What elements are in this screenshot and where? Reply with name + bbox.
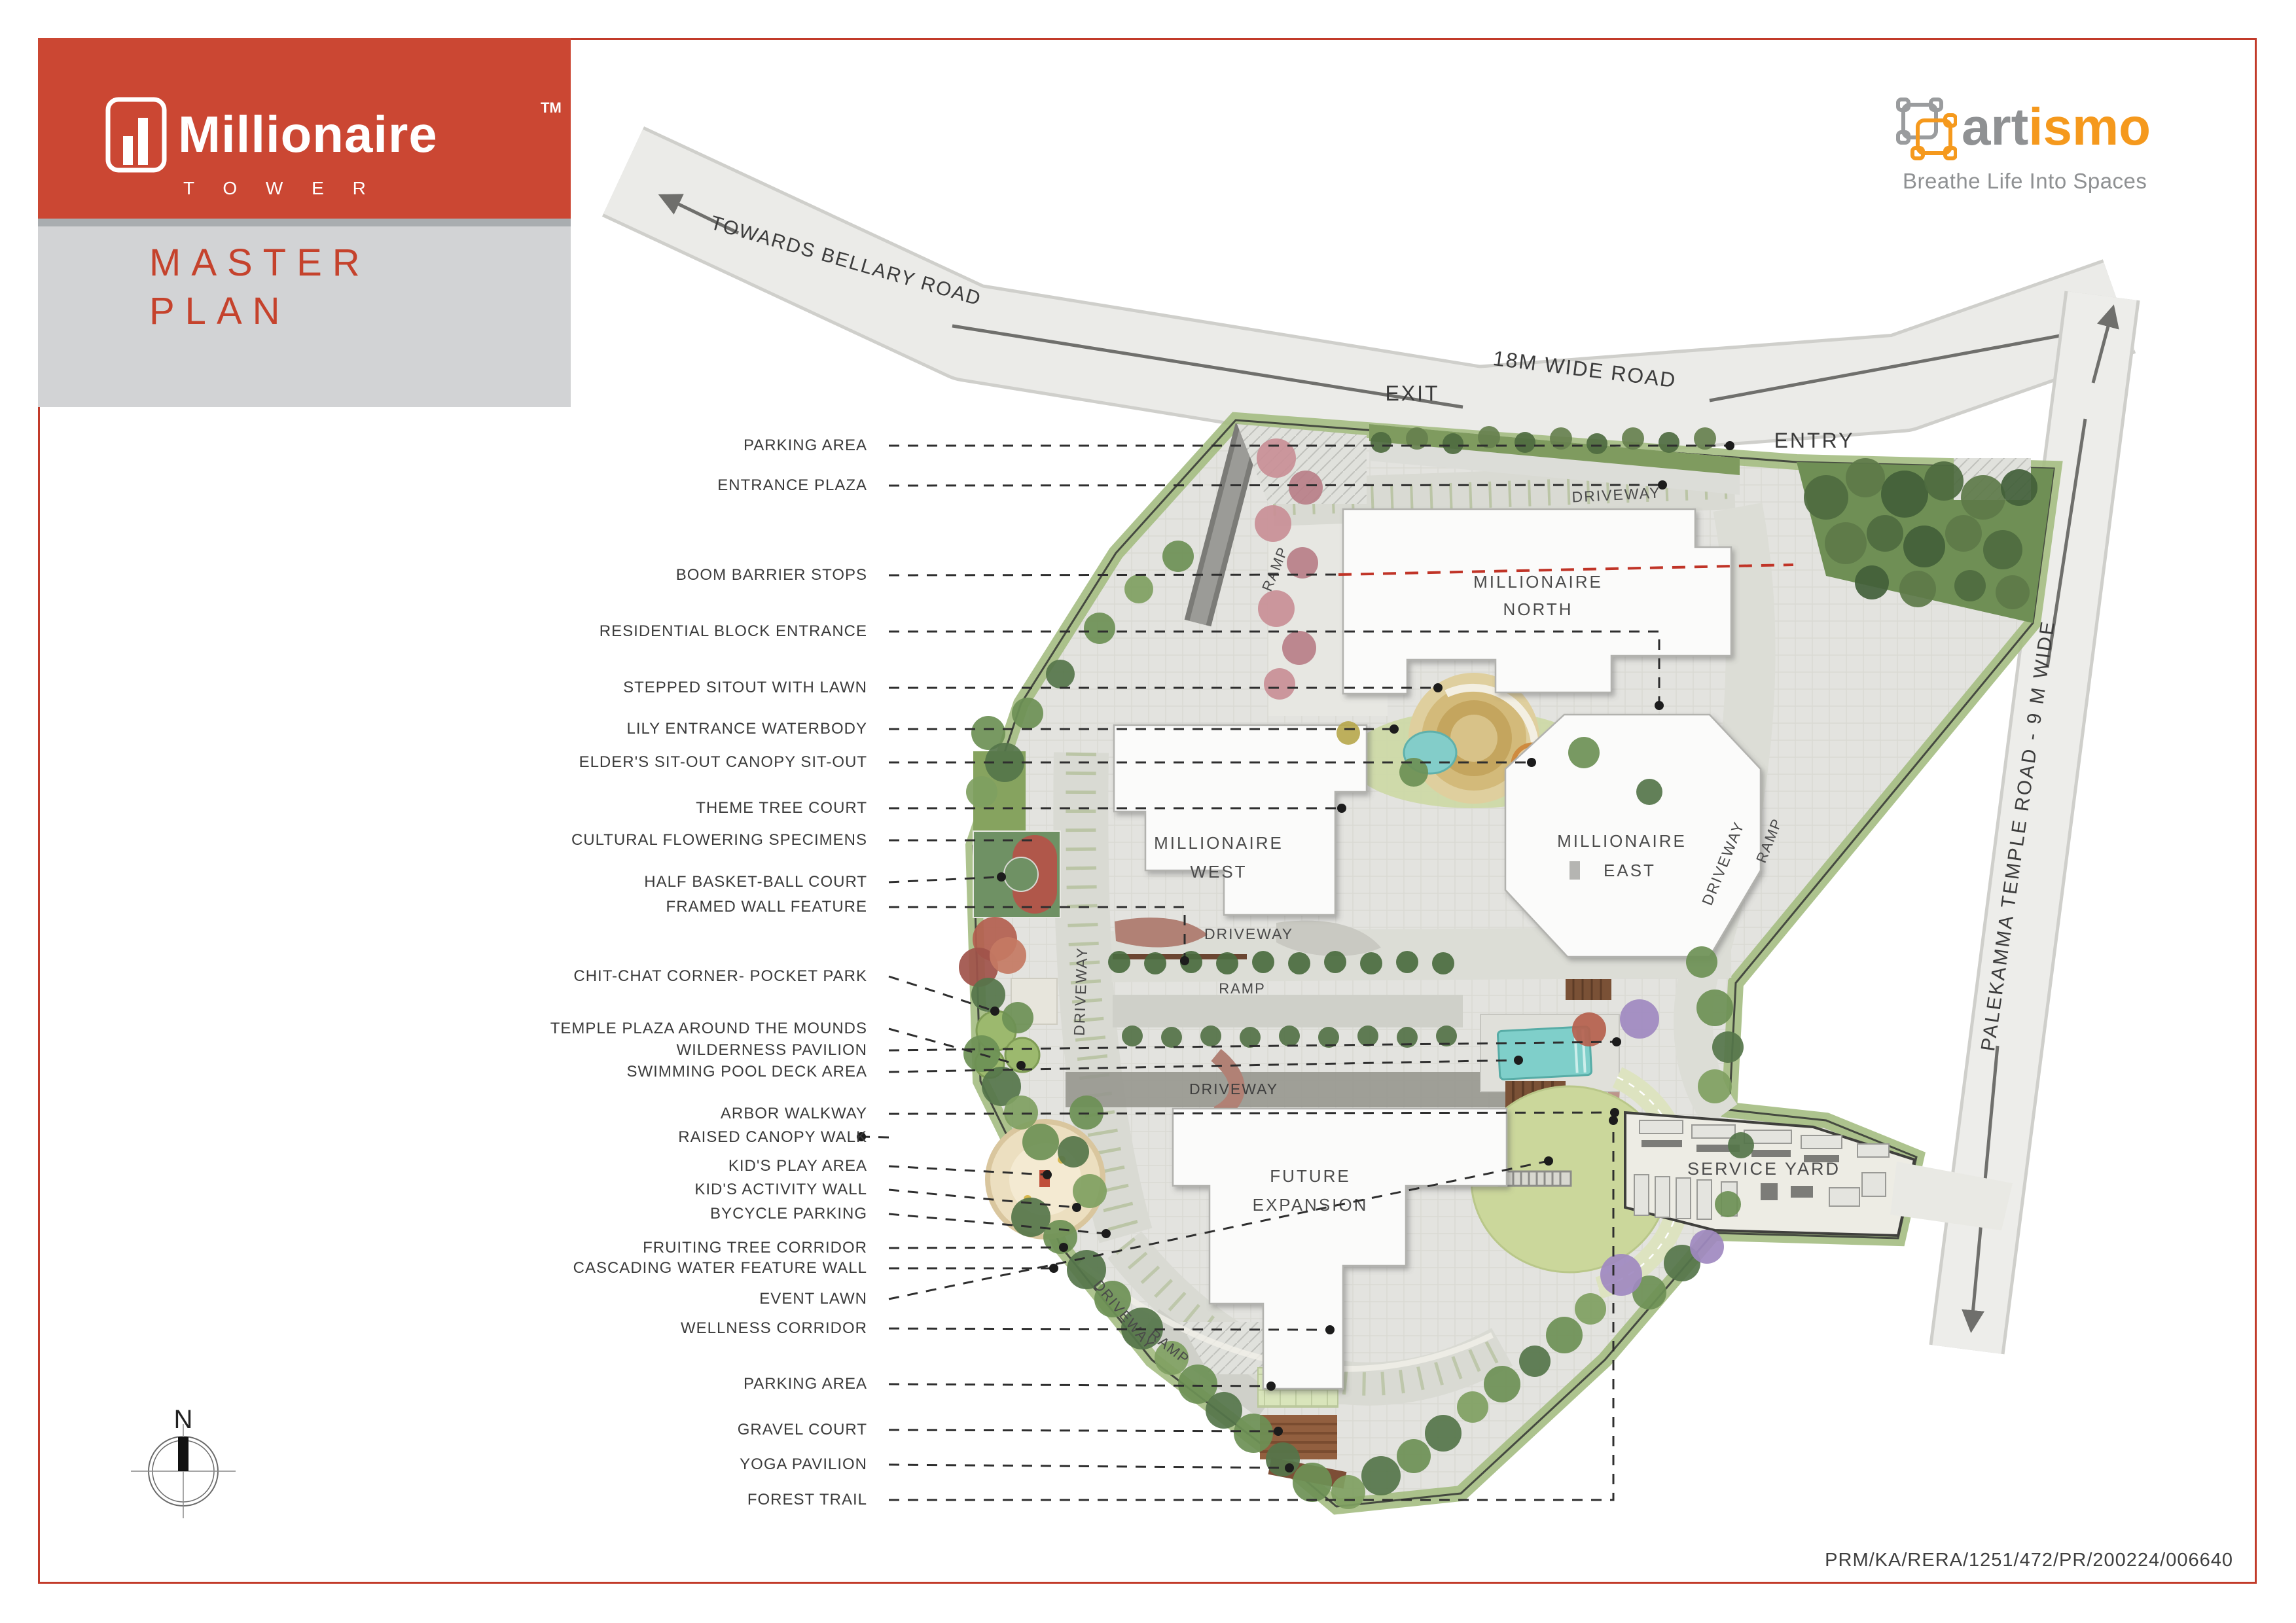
artismo-logo-icon — [1892, 92, 1957, 164]
callout-label: RAISED CANOPY WALK — [0, 1128, 867, 1147]
callout-label: CHIT-CHAT CORNER- POCKET PARK — [0, 967, 867, 986]
callout-label: ELDER'S SIT-OUT CANOPY SIT-OUT — [0, 753, 867, 772]
tree — [1715, 1191, 1741, 1217]
leader-line — [889, 1465, 1289, 1468]
tree — [1289, 471, 1323, 505]
tree — [1867, 515, 1903, 552]
callout-label: FRAMED WALL FEATURE — [0, 897, 867, 917]
tree — [1515, 432, 1535, 453]
tree — [1636, 779, 1662, 805]
tree — [1058, 1136, 1089, 1168]
tree — [1012, 698, 1043, 729]
tree — [990, 937, 1026, 974]
leader-dot — [1527, 758, 1536, 767]
masterplan-poster: TOWARDS BELLARY ROAD18M WIDE ROADEXITENT… — [0, 0, 2296, 1623]
callout-label: FOREST TRAIL — [0, 1490, 867, 1510]
plan-text: RAMP — [1219, 980, 1266, 997]
tree — [1124, 575, 1153, 603]
plan-text: SERVICE YARD — [1687, 1159, 1840, 1179]
tree — [1336, 721, 1360, 745]
leader-dot — [1325, 1325, 1335, 1334]
tree — [1282, 631, 1316, 665]
tree — [1255, 505, 1291, 542]
leader-dot — [1337, 804, 1346, 813]
leader-dot — [1043, 1170, 1052, 1179]
tree — [1293, 1463, 1332, 1502]
brand-name: Millionaire — [178, 105, 438, 164]
tree — [1004, 1096, 1038, 1130]
tree — [1357, 1026, 1378, 1046]
tree — [1457, 1391, 1488, 1423]
tree — [1144, 952, 1166, 974]
tree — [1331, 1475, 1365, 1509]
leader-line — [889, 1430, 1278, 1431]
page-title-line1: MASTER — [149, 241, 370, 285]
tree — [1257, 438, 1296, 478]
leader-dot — [1612, 1037, 1621, 1046]
plan-text: DRIVEWAY — [1189, 1080, 1278, 1097]
tree — [1252, 951, 1274, 973]
tree — [1903, 526, 1945, 567]
callout-label: RESIDENTIAL BLOCK ENTRANCE — [0, 622, 867, 641]
tree — [1161, 1027, 1182, 1048]
callout-label: WILDERNESS PAVILION — [0, 1041, 867, 1060]
callout-label: CULTURAL FLOWERING SPECIMENS — [0, 830, 867, 850]
tree — [1266, 1442, 1300, 1476]
callout-label: HALF BASKET-BALL COURT — [0, 872, 867, 892]
tree — [1825, 522, 1867, 564]
leader-dot — [1390, 724, 1399, 734]
tree — [1899, 571, 1936, 607]
callout-label: THEME TREE COURT — [0, 798, 867, 818]
leader-dot — [1433, 683, 1443, 692]
page-title-line2: PLAN — [149, 289, 291, 333]
leader-dot — [1544, 1156, 1553, 1166]
basketball-court — [973, 831, 1060, 918]
tree — [1600, 1254, 1642, 1296]
tree — [1546, 1317, 1583, 1353]
callout-label: FRUITING TREE CORRIDOR — [0, 1238, 867, 1258]
leader-dot — [990, 1007, 999, 1016]
tree — [1432, 952, 1454, 974]
studio-name: artismo — [1962, 97, 2151, 157]
east-label-marker — [1570, 861, 1580, 880]
tree — [1587, 433, 1607, 454]
callout-label: PARKING AREA — [0, 436, 867, 455]
tree — [1200, 1026, 1221, 1046]
tree — [1279, 1026, 1300, 1046]
callout-label: ARBOR WALKWAY — [0, 1104, 867, 1124]
road-bellary — [623, 171, 2119, 415]
studio-tagline: Breathe Life Into Spaces — [1903, 169, 2147, 194]
tree — [1022, 1124, 1059, 1160]
tree — [1846, 458, 1885, 497]
tree — [1961, 475, 2005, 520]
tree — [2001, 469, 2037, 506]
tree — [1371, 432, 1391, 453]
leader-dot — [1102, 1229, 1111, 1238]
callout-label: YOGA PAVILION — [0, 1455, 867, 1474]
leader-dot — [1725, 441, 1734, 450]
leader-dot — [1180, 956, 1189, 965]
tree — [1360, 952, 1382, 974]
tree — [1881, 471, 1928, 518]
leader-dot — [1514, 1056, 1523, 1065]
leader-dot — [1610, 1108, 1619, 1117]
tree — [1519, 1346, 1551, 1377]
plan-text: EXIT — [1385, 382, 1439, 405]
tree — [1568, 737, 1600, 768]
plan-text: EAST — [1604, 861, 1656, 880]
tree — [1084, 613, 1115, 644]
leader-dot — [1658, 480, 1667, 490]
tree — [1397, 1439, 1431, 1473]
tree — [1234, 1414, 1273, 1453]
leader-dot — [1274, 1427, 1283, 1436]
studio-name-orange: ismo — [2028, 98, 2151, 156]
plan-text: DRIVEWAY — [1204, 925, 1293, 942]
tree — [1073, 1174, 1107, 1208]
tree — [1258, 590, 1295, 627]
plan-text: FUTURE — [1270, 1166, 1350, 1186]
plan-text: WEST — [1190, 862, 1247, 882]
callout-label: CASCADING WATER FEATURE WALL — [0, 1258, 867, 1278]
tree — [1002, 1002, 1033, 1033]
callout-label: KID'S PLAY AREA — [0, 1156, 867, 1176]
tree — [1425, 1415, 1462, 1452]
tree — [1162, 541, 1194, 572]
tree — [1728, 1132, 1754, 1158]
callout-label: PARKING AREA — [0, 1374, 867, 1394]
callout-label: EVENT LAWN — [0, 1289, 867, 1309]
brand-subtitle: T O W E R — [183, 178, 378, 199]
callout-label: STEPPED SITOUT WITH LAWN — [0, 678, 867, 698]
callout-label: WELLNESS CORRIDOR — [0, 1319, 867, 1338]
plan-text: MILLIONAIRE — [1557, 831, 1687, 851]
leader-dot — [1049, 1264, 1058, 1273]
tree — [1264, 668, 1295, 700]
callout-label: KID'S ACTIVITY WALL — [0, 1180, 867, 1200]
tree — [1855, 565, 1889, 599]
tree — [1659, 432, 1679, 453]
brand-tm: TM — [541, 99, 562, 116]
tree — [1396, 951, 1418, 973]
tree — [1324, 951, 1346, 973]
tree — [971, 978, 1005, 1012]
callout-label: GRAVEL COURT — [0, 1420, 867, 1440]
leader-dot — [1059, 1243, 1068, 1252]
tree — [1620, 999, 1659, 1039]
header-divider — [38, 219, 571, 226]
tree — [1945, 515, 1982, 552]
tree — [1696, 990, 1733, 1026]
tree — [1046, 660, 1075, 688]
tree — [1484, 1366, 1520, 1402]
tree — [1686, 946, 1717, 978]
callout-label: TEMPLE PLAZA AROUND THE MOUNDS — [0, 1019, 867, 1039]
leader-dot — [1609, 1116, 1618, 1125]
leader-dot — [1285, 1463, 1294, 1472]
tree — [966, 776, 997, 808]
tree — [1288, 952, 1310, 974]
leader-dot — [1072, 1203, 1081, 1212]
tree — [1108, 951, 1130, 973]
tree — [1804, 475, 1848, 520]
studio-name-gray: art — [1962, 98, 2028, 156]
callout-label: LILY ENTRANCE WATERBODY — [0, 719, 867, 739]
callout-label: SWIMMING POOL DECK AREA — [0, 1062, 867, 1082]
tree — [1216, 952, 1238, 974]
tree — [1443, 433, 1463, 454]
leader-dot — [1266, 1382, 1276, 1391]
tree — [1954, 570, 1986, 601]
studio-logo: artismo Breathe Life Into Spaces — [1892, 92, 2258, 203]
leader-dot — [1655, 701, 1664, 710]
plan-text: MILLIONAIRE — [1154, 833, 1283, 853]
tree — [1996, 575, 2030, 609]
leader-line — [889, 1247, 1064, 1248]
plan-text: EXPANSION — [1253, 1195, 1369, 1215]
tree — [1712, 1031, 1744, 1063]
lawn-steps — [1499, 1171, 1571, 1186]
tree — [1924, 461, 1964, 501]
callout-label: BOOM BARRIER STOPS — [0, 565, 867, 585]
rera-number: PRM/KA/RERA/1251/472/PR/200224/006640 — [1249, 1550, 2233, 1571]
tree — [1122, 1026, 1143, 1046]
callout-label: BYCYCLE PARKING — [0, 1204, 867, 1224]
plan-text: DRIVEWAY — [1071, 946, 1091, 1036]
tree — [1983, 530, 2022, 569]
leader-dot — [997, 872, 1006, 882]
tree — [1575, 1293, 1606, 1325]
plan-text: MILLIONAIRE — [1473, 572, 1603, 592]
tree — [1240, 1027, 1261, 1048]
callout-label: ENTRANCE PLAZA — [0, 476, 867, 495]
plan-text: ENTRY — [1774, 429, 1855, 452]
plan-text: NORTH — [1503, 599, 1573, 619]
tree — [1698, 1069, 1732, 1103]
tree — [1690, 1230, 1724, 1264]
tree — [1361, 1456, 1401, 1495]
